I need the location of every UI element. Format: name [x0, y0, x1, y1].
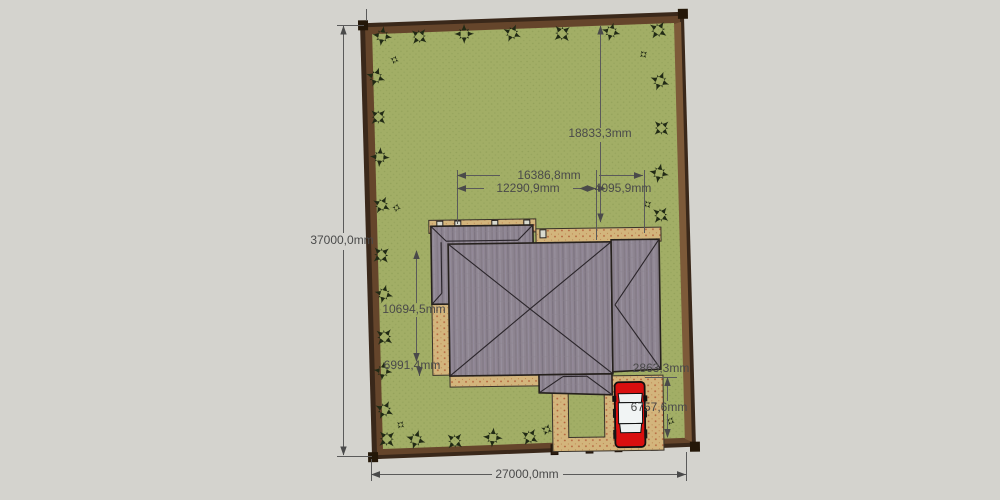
dim-house-main-width: 12290,9mm: [496, 181, 559, 195]
dim-house-total-width: 16386,8mm: [517, 168, 580, 182]
dim-house-right-width: 4095,9mm: [595, 181, 652, 195]
dim-plot-width: 27000,0mm: [495, 467, 558, 481]
car-rear-window: [620, 423, 642, 432]
model-canvas[interactable]: 18833,3mm 16386,8mm 12290,9mm 4095,9mm 3…: [0, 0, 1000, 500]
red-car: [612, 382, 648, 447]
garden-bed: [568, 389, 605, 437]
car-mirror-left: [612, 396, 616, 402]
dim-driveway-depth: 6757,6mm: [631, 400, 688, 414]
dim-house-left-depth: 6991,4mm: [384, 358, 441, 372]
plot-group: [358, 9, 700, 463]
dim-plot-height: 37000,0mm: [310, 233, 373, 247]
dim-setback-top: 18833,3mm: [568, 126, 631, 140]
model-viewport[interactable]: 18833,3mm 16386,8mm 12290,9mm 4095,9mm 3…: [0, 0, 1000, 500]
dim-house-main-depth: 10694,5mm: [382, 302, 445, 316]
dim-right-gap: 2863,3mm: [633, 361, 690, 375]
roof-right-section: [611, 239, 661, 372]
